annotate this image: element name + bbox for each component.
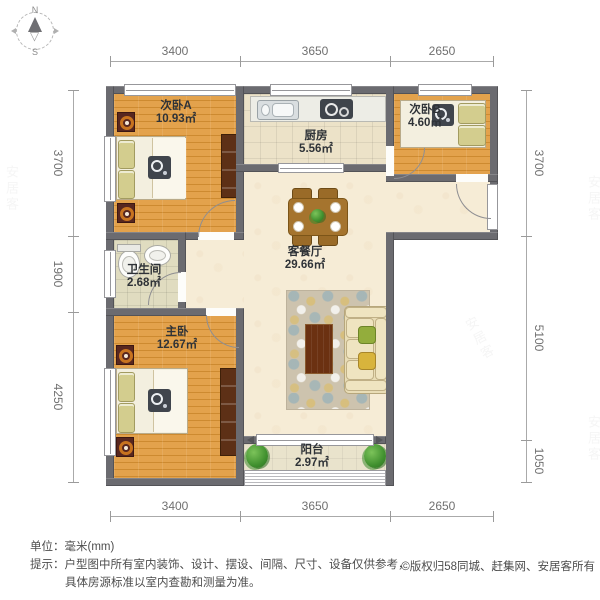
pillow [118,170,135,199]
dim-tick [110,56,111,67]
dim-line-top [110,61,494,62]
room-label-bathroom: 卫生间 2.68㎡ [108,264,180,290]
room-label-balcony: 阳台 2.97㎡ [262,444,362,470]
slide-arrow-right-icon [376,436,383,444]
compass: N ▽ S [12,8,58,54]
wardrobe-bedroomA [221,134,237,198]
wall-outer-right-lower [386,232,394,486]
dim-right-2: 5100 [532,308,546,368]
compass-south-label: S [12,47,58,57]
dim-tick [68,236,79,237]
dim-bottom-2: 3650 [285,499,345,513]
room-label-bedroomB: 次卧B 4.60㎡ [396,104,454,130]
pillow [118,403,135,433]
nightstand [116,437,134,457]
room-area: 4.60㎡ [396,117,454,130]
room-label-bedroomA: 次卧A 10.93㎡ [126,100,226,126]
sofa-pillow-yellow [358,352,376,370]
dim-bottom-3: 2650 [412,499,472,513]
pillow [458,125,486,146]
room-name: 厨房 [266,130,366,143]
window-kitchen-pass [278,163,344,173]
watermark: 安居客 [584,175,600,223]
dim-left-3: 4250 [51,367,65,427]
kitchen-stove [320,99,353,119]
dim-tick [240,56,241,67]
sofa-armrest [345,380,387,391]
watermark: 安居客 [460,313,499,364]
pillow [118,372,135,402]
dim-tick [390,511,391,522]
floor-hallway [186,240,244,308]
dim-tick [521,440,532,441]
footer-tip-line2: 具体房源标准以室内查勘和测量为准。 [65,574,261,590]
dim-right-1: 3700 [532,133,546,193]
wall-outer-bottom [106,478,244,486]
watermark: 安居客 [2,165,21,213]
coffee-table [305,324,333,374]
door-gap-bedroomB [386,146,394,176]
room-area: 12.67㎡ [127,339,227,352]
dim-top-1: 3400 [145,44,205,58]
balcony-plant [364,444,386,468]
compass-north-label: N [12,5,58,15]
dim-tick [493,511,494,522]
toilet-tank [117,244,141,252]
compass-west-tick-icon [11,28,16,34]
plate [293,202,304,213]
room-area: 5.56㎡ [266,143,366,156]
dim-tick [68,482,79,483]
room-name: 主卧 [127,326,227,339]
window-bedroomB-top [418,84,472,96]
bathroom-sink [144,245,171,266]
compass-east-tick-icon [54,28,59,34]
dim-top-2: 3650 [285,44,345,58]
footer-unit-line: 单位：毫米(mm) [30,538,114,554]
room-label-master: 主卧 12.67㎡ [127,326,227,352]
dim-line-bottom [110,516,494,517]
plate [293,221,304,232]
room-label-living: 客餐厅 29.66㎡ [255,246,355,272]
dim-tick [521,90,532,91]
footer-tip-line1: 提示：户型图中所有室内装饰、设计、摆设、间隔、尺寸、设备仅供参考， [30,556,410,572]
slide-arrow-left-icon [247,436,254,444]
window-bedroomA-left [104,136,116,202]
window-master-left [104,368,116,456]
bed-tray [148,156,171,179]
dim-tick [68,90,79,91]
nightstand [117,203,135,223]
room-name: 次卧A [126,100,226,113]
dim-bottom-1: 3400 [145,499,205,513]
room-area: 2.68㎡ [108,277,180,290]
room-area: 2.97㎡ [262,457,362,470]
dim-tick [68,312,79,313]
dim-left-2: 1900 [51,244,65,304]
balcony-railing [244,470,386,486]
room-area: 10.93㎡ [126,113,226,126]
door-gap-entry [456,174,488,182]
room-area: 29.66㎡ [255,259,355,272]
dim-tick [493,56,494,67]
table-plant [311,209,324,222]
kitchen-sink [257,100,299,120]
pillow [458,103,486,124]
plate [330,202,341,213]
dim-top-3: 2650 [412,44,472,58]
dim-tick [240,511,241,522]
watermark: 安居客 [584,415,600,463]
dim-tick [110,511,111,522]
dim-line-right [526,90,527,482]
dim-tick [521,236,532,237]
sofa-pillow-green [358,326,376,344]
sofa-armrest [345,307,387,318]
wardrobe-master [220,368,237,456]
floorplan-page: { "compass": {"north": "N", "south": "S"… [0,0,600,600]
compass-south-arrow-icon: ▽ [12,29,57,43]
plate [330,221,341,232]
dim-right-3: 1050 [532,431,546,491]
window-kitchen-top [270,84,352,96]
window-bedroomA-top [124,84,236,96]
room-name: 阳台 [262,444,362,457]
room-name: 客餐厅 [255,246,355,259]
room-label-kitchen: 厨房 5.56㎡ [266,130,366,156]
wall-bedroomA-right [236,86,244,240]
room-name: 次卧B [396,104,454,117]
dim-line-left [73,90,74,482]
dim-left-1: 3700 [51,133,65,193]
room-name: 卫生间 [108,264,180,277]
wall-step [386,232,498,240]
footer-copyright: ©版权归58同城、赶集网、安居客所有 [383,558,595,574]
dim-tick [390,56,391,67]
bed-tray [148,389,171,412]
pillow [118,140,135,169]
dim-tick [521,482,532,483]
